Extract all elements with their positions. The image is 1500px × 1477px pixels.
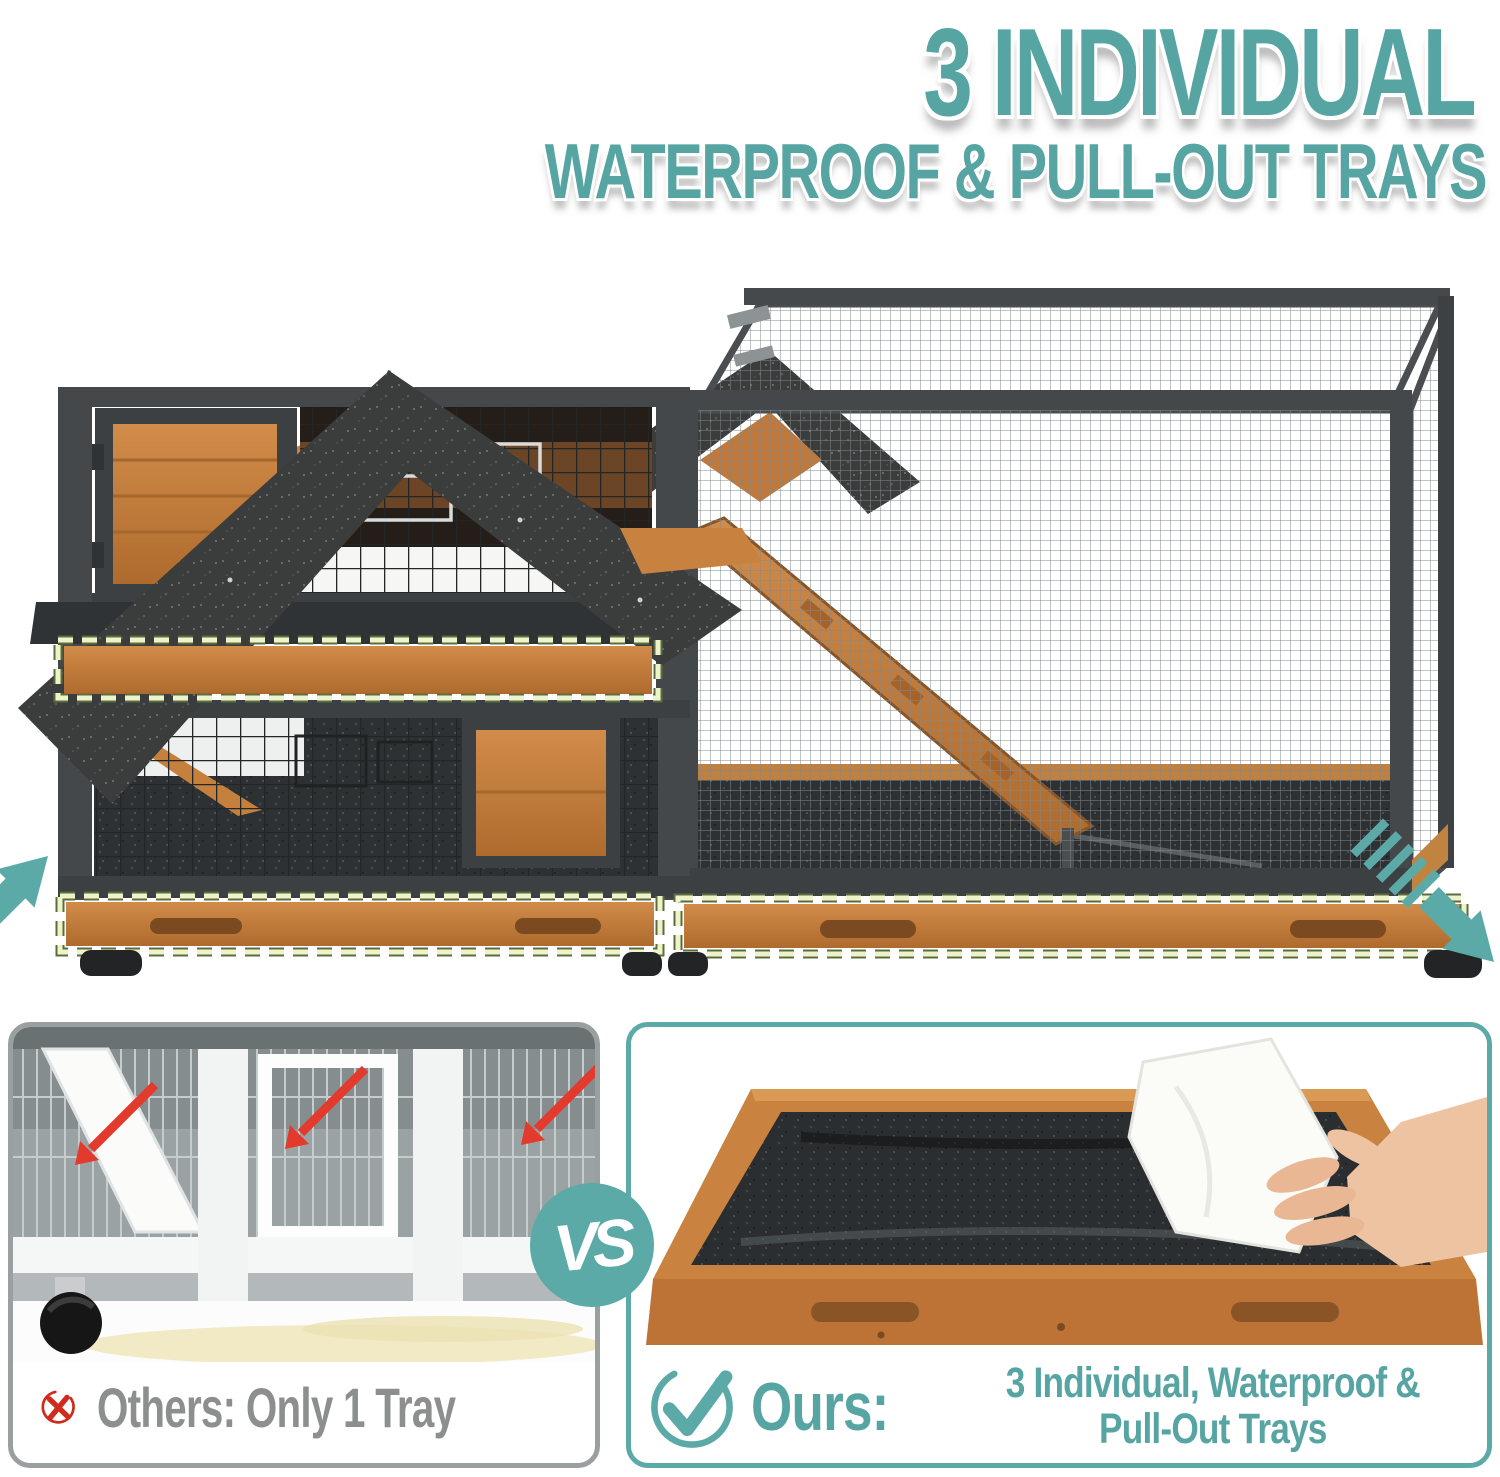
product-advertisement: 3 INDIVIDUAL WATERPROOF & PULL-OUT TRAYS [0, 0, 1500, 1477]
vs-label: VS [550, 1203, 634, 1287]
run-front-mesh [678, 305, 1412, 896]
ours-tray-photo [631, 1027, 1487, 1362]
hutch-product-photo [0, 160, 1500, 1000]
ours-description-line1: 3 Individual, Waterproof & [989, 1361, 1438, 1407]
vs-badge: VS [530, 1183, 654, 1307]
check-icon [645, 1360, 739, 1454]
others-label: Others: Only 1 Tray [97, 1375, 455, 1440]
ours-description: 3 Individual, Waterproof & Pull-Out Tray… [989, 1361, 1438, 1452]
others-single-tray-photo [13, 1027, 595, 1362]
ours-description-line2: Pull-Out Trays [989, 1407, 1438, 1453]
middle-pull-out-tray [58, 640, 658, 698]
left-bottom-pull-out-tray [60, 896, 660, 952]
ours-caption: Ours: 3 Individual, Waterproof & Pull-Ou… [631, 1351, 1487, 1463]
comparison-panel-ours: Ours: 3 Individual, Waterproof & Pull-Ou… [626, 1022, 1492, 1468]
right-bottom-pull-out-tray [678, 898, 1464, 954]
x-mark-icon [39, 1360, 77, 1454]
pull-out-arrow-up-icon [0, 837, 67, 1000]
hutch-lower-door [462, 718, 620, 868]
others-caption: Others: Only 1 Tray [13, 1351, 595, 1463]
headline-line1: 3 INDIVIDUAL [923, 2, 1474, 144]
ours-label: Ours: [751, 1368, 889, 1446]
comparison-panel-others: Others: Only 1 Tray [8, 1022, 600, 1468]
